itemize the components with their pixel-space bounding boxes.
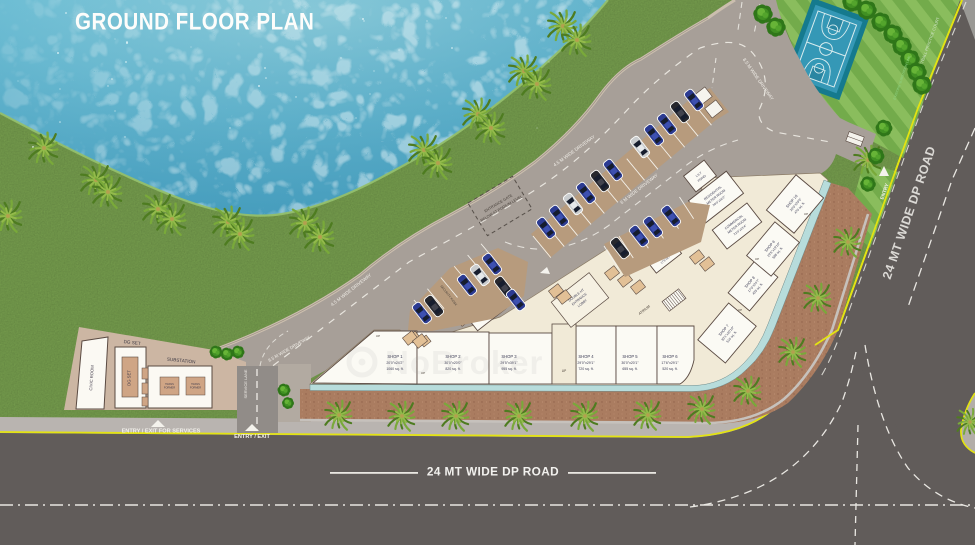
svg-text:UP: UP	[738, 308, 742, 312]
svg-text:520 sq. ft.: 520 sq. ft.	[662, 367, 677, 371]
svg-text:30'0"x20'1": 30'0"x20'1"	[621, 361, 639, 365]
svg-text:17'6"x29'1": 17'6"x29'1"	[661, 361, 679, 365]
svg-text:TRANS: TRANS	[165, 382, 174, 386]
svg-text:GROUND FLOOR PLAN: GROUND FLOOR PLAN	[75, 8, 314, 35]
svg-text:UP: UP	[376, 334, 380, 338]
svg-text:FORMER: FORMER	[164, 385, 175, 389]
svg-text:UP: UP	[562, 369, 566, 373]
svg-text:TRANS: TRANS	[191, 382, 200, 386]
svg-text:SHOP 6: SHOP 6	[662, 354, 678, 359]
svg-text:24 MT WIDE DP ROAD: 24 MT WIDE DP ROAD	[427, 465, 559, 479]
svg-text:FORMER: FORMER	[190, 385, 201, 389]
svg-text:SHOP 5: SHOP 5	[622, 354, 638, 359]
svg-text:SHOP 4: SHOP 4	[578, 354, 594, 359]
svg-text:ENTRY / EXIT: ENTRY / EXIT	[234, 434, 270, 440]
svg-text:DG SET: DG SET	[127, 370, 132, 386]
svg-text:29'0"x29'1": 29'0"x29'1"	[577, 361, 595, 365]
svg-text:720 sq. ft.: 720 sq. ft.	[578, 367, 593, 371]
svg-text:ENTRY / EXIT FOR SERVICES: ENTRY / EXIT FOR SERVICES	[122, 429, 201, 435]
svg-text:655 sq. ft.: 655 sq. ft.	[622, 367, 637, 371]
svg-text:NoBroker: NoBroker	[385, 344, 543, 381]
svg-text:UP: UP	[755, 257, 759, 261]
svg-text:SERVICE LANE: SERVICE LANE	[243, 369, 248, 398]
svg-text:UP: UP	[804, 212, 808, 216]
